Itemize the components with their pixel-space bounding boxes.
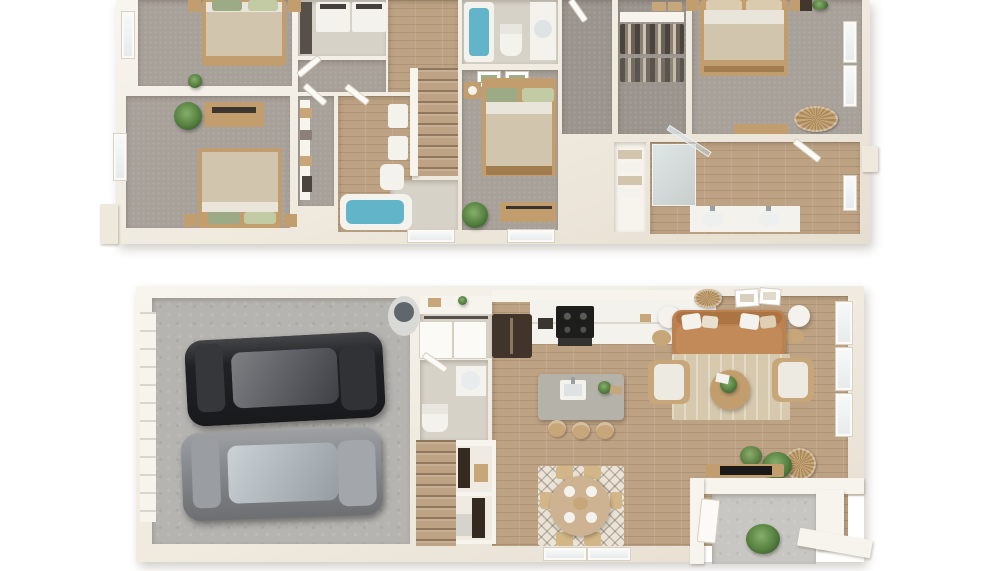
armchair-left-cushion — [654, 364, 684, 400]
living-window-3 — [836, 394, 852, 436]
media-screen — [720, 466, 772, 475]
sofa-seat-cushions — [676, 326, 782, 354]
side-table-left — [652, 330, 671, 346]
fridge-handle — [510, 318, 513, 354]
living-wall-art-1-print — [740, 294, 754, 302]
water-heater-cap — [394, 302, 414, 322]
place-setting-2 — [586, 486, 597, 497]
oven-front — [558, 338, 592, 346]
main-floor — [0, 0, 1000, 571]
coffee-maker — [538, 318, 553, 329]
pantry-rack-2 — [472, 498, 485, 538]
gray-car-hood — [337, 439, 377, 506]
jute-wall-decor — [694, 289, 722, 308]
place-setting-3 — [564, 512, 575, 523]
place-setting-1 — [564, 486, 575, 497]
dining-centerpiece — [573, 497, 588, 510]
front-window-2 — [588, 548, 630, 560]
porch-plant — [746, 524, 780, 554]
living-wall-art-2-print — [763, 292, 776, 300]
island-stool-1 — [548, 420, 566, 437]
front-window-1 — [544, 548, 586, 560]
mudroom-basket — [428, 298, 441, 307]
black-car-trunk — [194, 343, 226, 412]
sofa-pillow-1 — [681, 313, 702, 330]
armchair-right-cushion — [778, 362, 808, 398]
powder-sink — [461, 371, 480, 390]
pantry-box-1 — [474, 464, 488, 482]
floor-lamp-right — [788, 305, 810, 327]
place-setting-4 — [586, 512, 597, 523]
living-plant-2 — [740, 446, 762, 466]
gray-car-trunk — [191, 438, 221, 509]
black-car-hood — [338, 345, 377, 411]
sofa-pillow-3 — [739, 313, 760, 330]
mudroom-jar — [446, 297, 454, 306]
black-car-glass — [231, 347, 340, 408]
counter-bowl — [640, 314, 651, 322]
stove-cooktop — [556, 306, 594, 338]
gray-car-glass — [227, 442, 339, 504]
sofa-pillow-2 — [701, 315, 718, 329]
island-sink-basin — [564, 384, 582, 396]
closet-door-2 — [454, 322, 486, 358]
floor-plan-3d-rendering — [0, 0, 1000, 571]
side-table-right — [786, 329, 804, 344]
mudroom-coat-rod — [424, 316, 488, 319]
sofa-pillow-4 — [759, 315, 776, 329]
dining-chair-e — [610, 492, 622, 509]
pantry-box-2 — [456, 514, 472, 536]
pantry-rack-1 — [458, 448, 470, 488]
powder-toilet-tank — [422, 404, 448, 414]
island-stool-3 — [596, 422, 614, 439]
main-stairs — [416, 440, 456, 546]
garage-door — [140, 312, 156, 522]
island-faucet — [571, 377, 575, 384]
mudroom-plant — [458, 296, 467, 305]
island-stool-2 — [572, 422, 590, 439]
living-window-2 — [836, 348, 852, 390]
living-window-1 — [836, 302, 852, 344]
